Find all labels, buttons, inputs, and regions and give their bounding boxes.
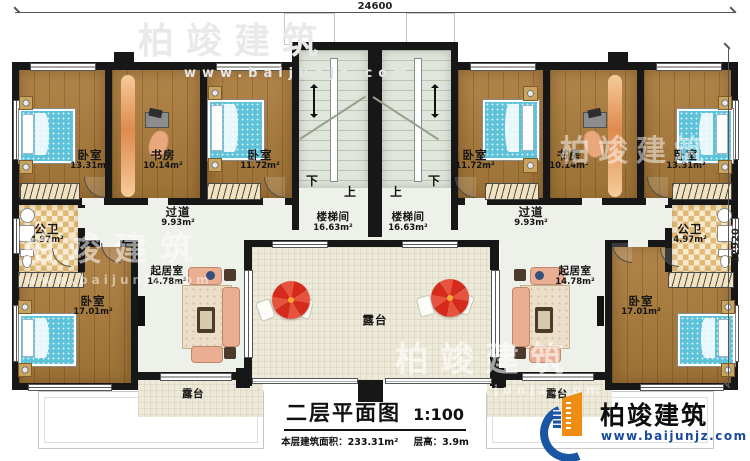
window-hatch — [672, 183, 732, 200]
umbrella-center — [288, 297, 294, 303]
sofa — [222, 287, 240, 347]
door-opening — [465, 198, 487, 205]
room-label-study-left: 书房 10.14m² — [128, 149, 198, 171]
room-label-stairwell-right: 楼梯间 16.63m² — [370, 212, 446, 233]
stair-arrow-head — [431, 80, 439, 88]
door-opening — [582, 198, 602, 205]
room-label-stairwell-left: 楼梯间 16.63m² — [295, 212, 371, 233]
room-label-hallway-right: 过道 9.93m² — [496, 206, 566, 228]
sofa — [512, 287, 530, 347]
drawing-title-row: 二层平面图 1:100 — [284, 397, 466, 431]
wall-segment — [236, 368, 250, 388]
washbasin — [20, 208, 35, 223]
door-opening — [82, 198, 104, 205]
right-dimension-line — [728, 48, 729, 386]
room-label-bedroom-bottom-left: 卧室 17.01m² — [58, 295, 128, 317]
window — [732, 100, 739, 160]
wall-segment — [105, 62, 112, 205]
logo-building-icon — [562, 392, 582, 436]
dimension-tick — [723, 42, 730, 49]
nightstand — [208, 158, 222, 172]
window — [656, 63, 722, 71]
logo-building-windows — [566, 402, 571, 430]
room-label-bedroom-top-center-left: 卧室 11.72m² — [225, 149, 295, 171]
wall-segment — [131, 240, 138, 390]
nightstand — [19, 96, 33, 110]
room-label-terrace-bottom-left: 露台 — [163, 389, 223, 401]
room-label-living-right: 起居室 14.78m² — [540, 266, 610, 287]
sofa — [191, 346, 223, 363]
room-label-bedroom-top-center-right: 卧室 11.72m² — [440, 149, 510, 171]
umbrella-center — [447, 295, 453, 301]
right-dimension-value: 12920 — [731, 225, 742, 267]
floor-plan-canvas: 24600 12920 卧室 13.31m² 书房 10.14m² 卧室 11.… — [0, 0, 750, 461]
washbasin — [717, 208, 732, 223]
roof-outline — [284, 13, 335, 45]
floor-area-value: 233.31m² — [348, 437, 399, 448]
stair-down-label-right: 下 — [428, 172, 440, 189]
bed-pillow — [211, 105, 223, 151]
wall-segment — [368, 42, 382, 237]
nightstand — [523, 86, 538, 101]
bed-pillow — [716, 114, 728, 154]
window-hatch — [485, 183, 539, 200]
brand-website: www.baijunjz.com — [601, 429, 748, 443]
nightstand — [718, 96, 732, 110]
stair-rail — [414, 58, 422, 182]
bed-pillow — [22, 319, 34, 357]
door-opening — [263, 198, 285, 205]
side-table — [224, 269, 236, 281]
bed-duvet — [224, 104, 238, 152]
nightstand — [18, 363, 32, 377]
bed-duvet — [35, 318, 49, 358]
drawing-subtitle: 本层建筑面积：233.31m² 层高：3.9m — [278, 434, 472, 448]
floor-height-value: 3.9m — [442, 437, 469, 448]
brand-name: 柏竣建筑 — [600, 396, 708, 432]
door-opening — [646, 198, 668, 205]
window — [491, 270, 500, 358]
room-label-study-right: 书房 10.14m² — [534, 149, 604, 171]
wall-segment — [114, 52, 134, 65]
stair-arrow — [313, 88, 315, 114]
room-label-bath-left: 公卫 4.97m² — [12, 223, 82, 245]
bed-duvet — [505, 104, 519, 152]
tv-wall-unit — [138, 296, 145, 326]
window — [28, 384, 112, 391]
window-hatch — [668, 272, 734, 288]
door-opening — [148, 198, 168, 205]
room-label-bedroom-top-left: 卧室 13.31m² — [55, 149, 125, 171]
drawing-scale: 1:100 — [413, 405, 464, 424]
floor-height-label: 层高： — [414, 437, 443, 448]
window-hatch — [20, 183, 80, 200]
brand-logo: 柏竣建筑 www.baijunjz.com — [538, 390, 750, 458]
window — [216, 63, 282, 71]
room-label-bedroom-bottom-right: 卧室 17.01m² — [606, 295, 676, 317]
tv-wall-unit — [597, 296, 604, 326]
stair-up-label-left: 上 — [344, 183, 356, 200]
stair-arrow-head — [310, 114, 318, 122]
stair-arrow-head — [431, 114, 439, 122]
wall-segment — [200, 62, 207, 205]
floor-area-label: 本层建筑面积： — [281, 437, 348, 448]
side-table — [514, 269, 526, 281]
bed-pillow — [522, 105, 534, 151]
room-label-living-left: 起居室 14.78m² — [132, 266, 202, 287]
stair-arrow — [434, 88, 436, 114]
logo-building-small — [553, 410, 561, 428]
nightstand — [19, 160, 33, 174]
window-hatch — [207, 183, 261, 200]
bed-duvet — [701, 318, 715, 358]
stair-up-label-right: 上 — [390, 183, 402, 200]
window — [402, 241, 458, 248]
window — [470, 63, 536, 71]
bed-duvet — [35, 113, 49, 155]
bed-pillow — [22, 114, 34, 154]
coffee-table-top — [200, 311, 212, 329]
wall-segment — [637, 62, 644, 205]
nightstand — [208, 86, 222, 100]
window — [30, 63, 96, 71]
wall-segment — [543, 62, 550, 205]
stair-rail — [330, 58, 338, 182]
title-block: 二层平面图 1:100 本层建筑面积：233.31m² 层高：3.9m — [278, 397, 472, 448]
room-label-bedroom-top-right: 卧室 13.31m² — [651, 149, 721, 171]
window — [252, 378, 358, 384]
room-label-terrace-center: 露台 — [345, 314, 405, 327]
study-rug — [121, 75, 135, 197]
window-hatch — [18, 272, 84, 288]
wall-segment — [608, 52, 628, 65]
room-label-bath-right: 公卫 4.97m² — [655, 223, 725, 245]
nightstand — [18, 300, 32, 314]
room-label-hallway-left: 过道 9.93m² — [143, 206, 213, 228]
roof-outline — [406, 13, 455, 45]
window — [160, 373, 232, 381]
window — [522, 373, 594, 381]
side-table — [224, 347, 236, 359]
window — [385, 378, 492, 384]
window — [244, 270, 253, 358]
sofa — [529, 346, 561, 363]
stair-arrow-head — [310, 80, 318, 88]
study-rug — [608, 75, 622, 197]
coffee-table-top — [538, 311, 550, 329]
stair-down-label-left: 下 — [306, 172, 318, 189]
drawing-title: 二层平面图 — [286, 401, 401, 425]
top-dimension-value: 24600 — [347, 1, 403, 12]
person-figure — [206, 271, 215, 280]
window — [272, 241, 328, 248]
wall-segment — [492, 368, 506, 388]
top-dimension-line — [15, 12, 735, 13]
side-table — [514, 347, 526, 359]
